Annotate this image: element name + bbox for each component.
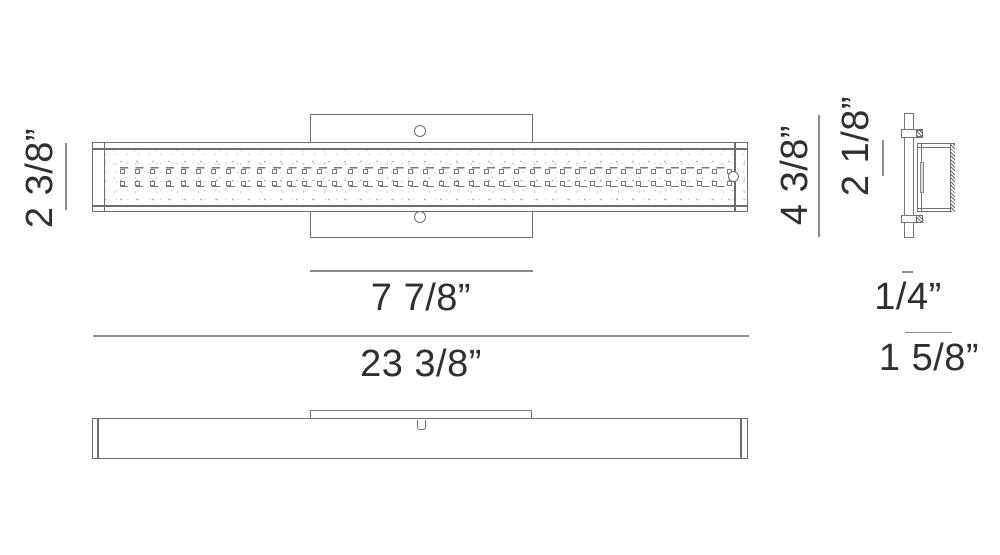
dim-line-overall-depth [905, 332, 952, 334]
led-square [439, 181, 444, 186]
led-square [697, 169, 702, 174]
led-square [150, 169, 155, 174]
led-square [545, 169, 550, 174]
technical-drawing: 2 3/8” 7 7/8” 23 3/8” 4 3/8” 2 1/8” 1 [0, 0, 1000, 555]
led-square [651, 169, 656, 174]
led-square [181, 169, 186, 174]
led-square [454, 169, 459, 174]
bottom-right-cap-line [740, 419, 742, 458]
led-square [257, 181, 262, 186]
led-square [469, 181, 474, 186]
led-square [196, 181, 201, 186]
led-square [378, 181, 383, 186]
led-square [257, 169, 262, 174]
led-square [241, 181, 246, 186]
led-square [317, 169, 322, 174]
led-square [606, 169, 611, 174]
led-square [514, 181, 519, 186]
led-square [135, 181, 140, 186]
led-square [287, 169, 292, 174]
led-square [560, 169, 565, 174]
dim-label-front-height: 2 3/8” [21, 128, 59, 228]
led-square [499, 181, 504, 186]
led-square [651, 181, 656, 186]
led-square [697, 181, 702, 186]
dim-label-backplate-width: 7 7/8” [371, 279, 471, 317]
led-square [332, 169, 337, 174]
led-square [621, 169, 626, 174]
led-square [681, 181, 686, 186]
led-square [590, 181, 595, 186]
led-square [560, 181, 565, 186]
led-square [621, 181, 626, 186]
dim-line-side-body-height [882, 140, 884, 176]
led-square [166, 169, 171, 174]
led-row-top [120, 167, 732, 174]
dim-line-front-height [65, 143, 67, 210]
led-square [499, 169, 504, 174]
led-square [484, 169, 489, 174]
led-square [241, 169, 246, 174]
led-square [120, 181, 125, 186]
led-square [514, 169, 519, 174]
led-square [211, 169, 216, 174]
dim-label-side-body-height: 2 1/8” [837, 96, 875, 196]
led-square [423, 181, 428, 186]
bar-left-cap-line [104, 143, 106, 211]
led-square [226, 181, 231, 186]
led-square [363, 169, 368, 174]
led-square [378, 169, 383, 174]
led-square [226, 169, 231, 174]
led-square [302, 181, 307, 186]
bar-inner-bottom-line [93, 205, 747, 207]
side-bracket-top-block [916, 130, 923, 138]
led-square [302, 169, 307, 174]
led-square [272, 169, 277, 174]
dim-line-backplate-height [818, 115, 820, 237]
led-square [439, 169, 444, 174]
led-square [287, 181, 292, 186]
led-square [272, 181, 277, 186]
led-square [166, 181, 171, 186]
led-square [135, 169, 140, 174]
led-square [575, 181, 580, 186]
dim-label-overall-width: 23 3/8” [360, 345, 482, 383]
end-cap-screw [728, 171, 739, 182]
led-square [636, 181, 641, 186]
led-square [606, 181, 611, 186]
cable-notch [417, 420, 426, 430]
led-square [332, 181, 337, 186]
led-square [150, 181, 155, 186]
screw-hole-top [414, 125, 426, 137]
led-square [530, 181, 535, 186]
led-square [712, 181, 717, 186]
led-square [348, 169, 353, 174]
led-square [423, 169, 428, 174]
led-square [181, 181, 186, 186]
side-bracket-bottom-block [916, 215, 923, 223]
bottom-left-cap-line [97, 419, 99, 458]
dim-line-backplate-width [310, 270, 533, 272]
dim-line-backplate-depth [902, 271, 913, 273]
led-square [393, 181, 398, 186]
led-square [408, 181, 413, 186]
led-square [393, 169, 398, 174]
led-square [590, 169, 595, 174]
side-inner-strip [920, 162, 925, 193]
side-body-front-edge [950, 144, 955, 212]
led-square [712, 169, 717, 174]
dim-label-overall-depth: 1 5/8” [879, 339, 979, 377]
led-square [196, 169, 201, 174]
led-square [363, 181, 368, 186]
led-square [454, 181, 459, 186]
led-square [469, 169, 474, 174]
led-square [666, 181, 671, 186]
led-square [636, 169, 641, 174]
led-square [484, 181, 489, 186]
led-square [317, 181, 322, 186]
led-square [530, 169, 535, 174]
led-square [408, 169, 413, 174]
dim-label-backplate-depth: 1/4” [874, 278, 941, 316]
dim-line-overall-width [93, 335, 749, 337]
led-square [681, 169, 686, 174]
led-square [348, 181, 353, 186]
led-square [211, 181, 216, 186]
led-square [666, 169, 671, 174]
diffuser-texture [95, 149, 745, 205]
bar-inner-top-line [93, 148, 747, 150]
led-square [120, 169, 125, 174]
led-square [545, 181, 550, 186]
led-row-bottom [120, 180, 732, 187]
led-square [575, 169, 580, 174]
screw-hole-bottom [414, 211, 426, 223]
dim-label-backplate-height: 4 3/8” [776, 125, 814, 225]
